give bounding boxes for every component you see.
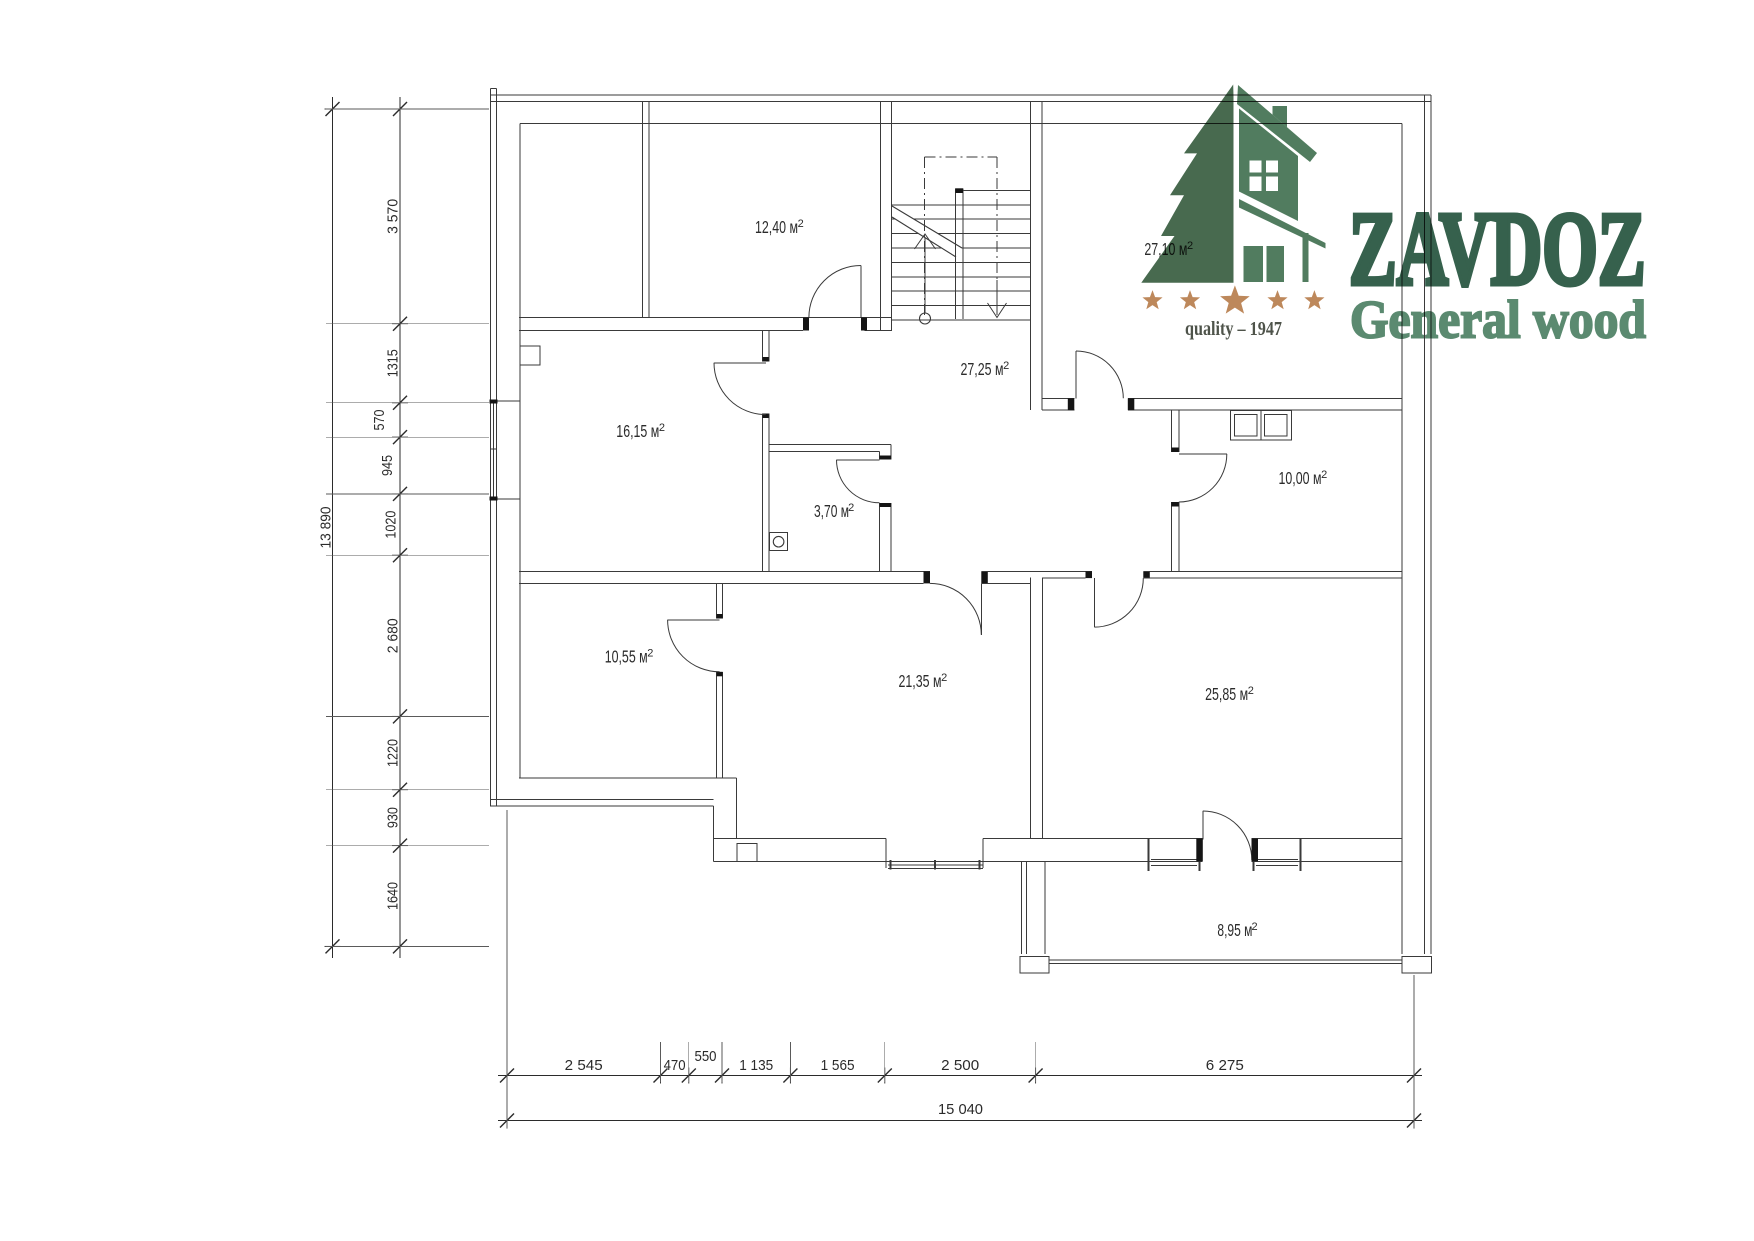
svg-text:1315: 1315 xyxy=(385,349,402,377)
svg-text:2: 2 xyxy=(1003,360,1009,372)
svg-text:2: 2 xyxy=(848,502,854,514)
svg-text:945: 945 xyxy=(379,455,396,476)
svg-text:16,15 м: 16,15 м xyxy=(616,421,659,441)
svg-text:15 040: 15 040 xyxy=(938,1101,983,1118)
svg-text:2: 2 xyxy=(647,648,653,660)
svg-text:1 565: 1 565 xyxy=(821,1057,855,1074)
svg-text:12,40 м: 12,40 м xyxy=(755,217,798,237)
svg-text:1220: 1220 xyxy=(385,739,402,767)
svg-text:quality – 1947: quality – 1947 xyxy=(1185,318,1282,340)
svg-text:10,55 м: 10,55 м xyxy=(605,647,648,667)
svg-text:2: 2 xyxy=(941,672,947,684)
svg-text:2: 2 xyxy=(659,422,665,434)
svg-text:3,70 м: 3,70 м xyxy=(814,501,849,521)
svg-text:3 570: 3 570 xyxy=(385,199,402,234)
svg-text:13 890: 13 890 xyxy=(318,507,335,549)
svg-text:General wood: General wood xyxy=(1350,290,1646,350)
svg-text:2: 2 xyxy=(1252,921,1258,933)
svg-text:10,00 м: 10,00 м xyxy=(1279,468,1322,488)
svg-text:2: 2 xyxy=(798,218,804,230)
svg-text:1640: 1640 xyxy=(385,882,402,910)
svg-text:25,85 м: 25,85 м xyxy=(1205,684,1248,704)
svg-text:550: 550 xyxy=(695,1048,717,1065)
svg-text:2: 2 xyxy=(1321,469,1327,481)
svg-text:1020: 1020 xyxy=(383,511,400,539)
svg-text:2: 2 xyxy=(1248,685,1254,697)
svg-text:2 545: 2 545 xyxy=(565,1057,603,1074)
svg-text:470: 470 xyxy=(664,1057,686,1074)
svg-text:6 275: 6 275 xyxy=(1206,1057,1244,1074)
svg-text:2 500: 2 500 xyxy=(941,1057,979,1074)
svg-text:1 135: 1 135 xyxy=(739,1057,773,1074)
svg-text:930: 930 xyxy=(385,807,402,828)
svg-text:8,95 м: 8,95 м xyxy=(1217,920,1252,940)
svg-text:2 680: 2 680 xyxy=(385,618,402,653)
svg-text:570: 570 xyxy=(371,410,388,431)
svg-text:21,35 м: 21,35 м xyxy=(899,671,942,691)
svg-text:27,25 м: 27,25 м xyxy=(961,359,1004,379)
